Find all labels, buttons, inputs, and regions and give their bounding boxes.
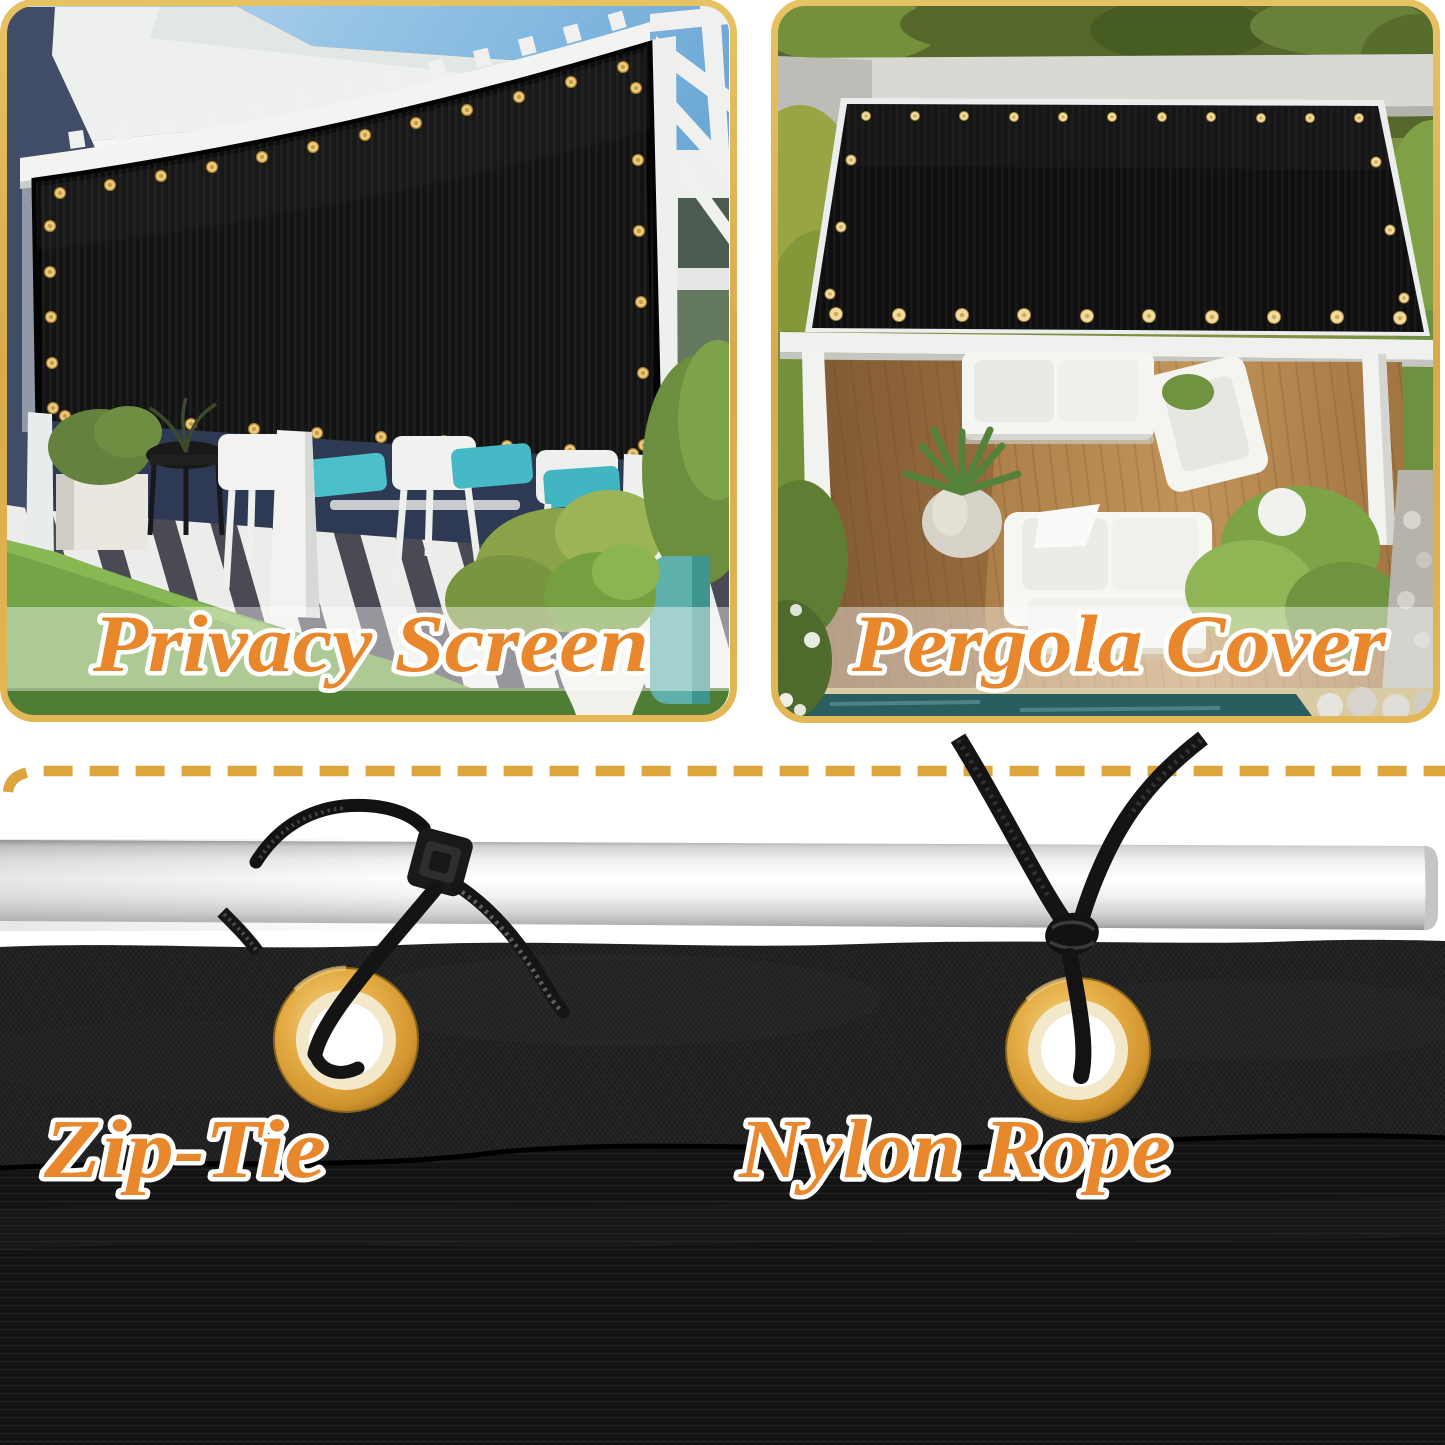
svg-text:Pergola Cover: Pergola Cover [851,598,1387,689]
svg-text:Nylon Rope: Nylon Rope [738,1103,1171,1196]
svg-text:Zip-Tie: Zip-Tie [43,1103,326,1196]
svg-text:Privacy Screen: Privacy Screen [92,598,649,689]
